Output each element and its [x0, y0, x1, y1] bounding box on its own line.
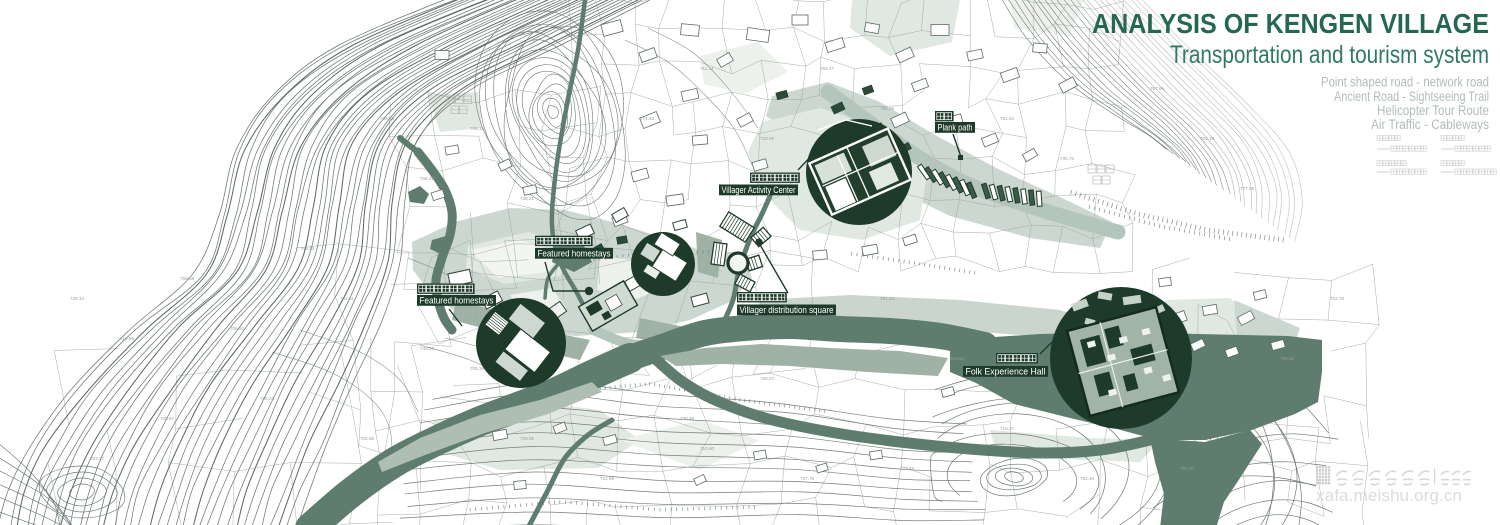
svg-text:745.67: 745.67 [160, 416, 174, 421]
svg-text:733.52: 733.52 [1280, 356, 1294, 361]
svg-text:Featured homestays: Featured homestays [538, 248, 611, 258]
svg-text:Helicopter Tour Route: Helicopter Tour Route [1377, 103, 1489, 118]
svg-text:Point shaped road - network ro: Point shaped road - network road [1321, 75, 1489, 90]
svg-text:705.65: 705.65 [360, 436, 374, 441]
svg-text:Plank path: Plank path [938, 123, 973, 133]
svg-text:748.23: 748.23 [300, 246, 314, 251]
svg-text:704.19: 704.19 [1200, 136, 1214, 141]
svg-text:729.14: 729.14 [70, 296, 84, 301]
svg-text:787.86: 787.86 [1150, 86, 1164, 91]
svg-text:738.21: 738.21 [520, 196, 534, 201]
svg-text:758.58: 758.58 [180, 276, 194, 281]
svg-text:751.94: 751.94 [1000, 116, 1014, 121]
svg-text:735.70: 735.70 [1060, 156, 1074, 161]
svg-text:761.24: 761.24 [880, 296, 894, 301]
svg-text:728.27: 728.27 [760, 376, 774, 381]
svg-text:706.29: 706.29 [420, 176, 434, 181]
svg-text:Transportation and tourism sys: Transportation and tourism system [1170, 41, 1489, 69]
svg-text:720.09: 720.09 [760, 136, 774, 141]
svg-text:732.91: 732.91 [340, 296, 354, 301]
svg-text:777.26: 777.26 [1240, 186, 1254, 191]
svg-text:773.45: 773.45 [900, 466, 914, 471]
svg-text:706.52: 706.52 [230, 326, 244, 331]
svg-text:711.14: 711.14 [700, 66, 714, 71]
svg-text:710.60: 710.60 [700, 446, 714, 451]
svg-text:716.27: 716.27 [1000, 426, 1014, 431]
svg-text:756.47: 756.47 [820, 66, 834, 71]
svg-text:xafa.meishu.org.cn: xafa.meishu.org.cn [1316, 487, 1462, 505]
svg-text:705.36: 705.36 [470, 366, 484, 371]
svg-text:Air Traffic - Cableways: Air Traffic - Cableways [1371, 117, 1489, 132]
svg-text:705.22: 705.22 [260, 396, 274, 401]
svg-text:752.34: 752.34 [1080, 476, 1094, 481]
svg-text:Villager Activity Center: Villager Activity Center [722, 185, 796, 195]
svg-text:738.48: 738.48 [680, 416, 694, 421]
svg-text:713.58: 713.58 [120, 336, 134, 341]
svg-text:739.03: 739.03 [380, 116, 394, 121]
svg-text:ANALYSIS OF KENGEN VILLAGE: ANALYSIS OF KENGEN VILLAGE [1092, 8, 1489, 39]
svg-text:752.70: 752.70 [1330, 296, 1344, 301]
svg-text:Featured homestays: Featured homestays [420, 296, 494, 306]
svg-text:Folk Experience Hall: Folk Experience Hall [966, 367, 1046, 377]
svg-text:785.29: 785.29 [880, 106, 894, 111]
svg-text:Villager distribution square: Villager distribution square [740, 305, 834, 315]
svg-text:703.37: 703.37 [90, 456, 104, 461]
svg-text:Ancient Road - Sightseeing Tra: Ancient Road - Sightseeing Trail [1334, 89, 1489, 104]
svg-text:708.16: 708.16 [470, 126, 484, 131]
svg-text:749.30: 749.30 [420, 346, 434, 351]
svg-text:712.98: 712.98 [600, 476, 614, 481]
svg-text:726.06: 726.06 [520, 436, 534, 441]
svg-text:757.50: 757.50 [1180, 466, 1194, 471]
svg-text:774.42: 774.42 [640, 116, 654, 121]
svg-text:718.54: 718.54 [950, 356, 964, 361]
svg-text:727.76: 727.76 [800, 476, 814, 481]
